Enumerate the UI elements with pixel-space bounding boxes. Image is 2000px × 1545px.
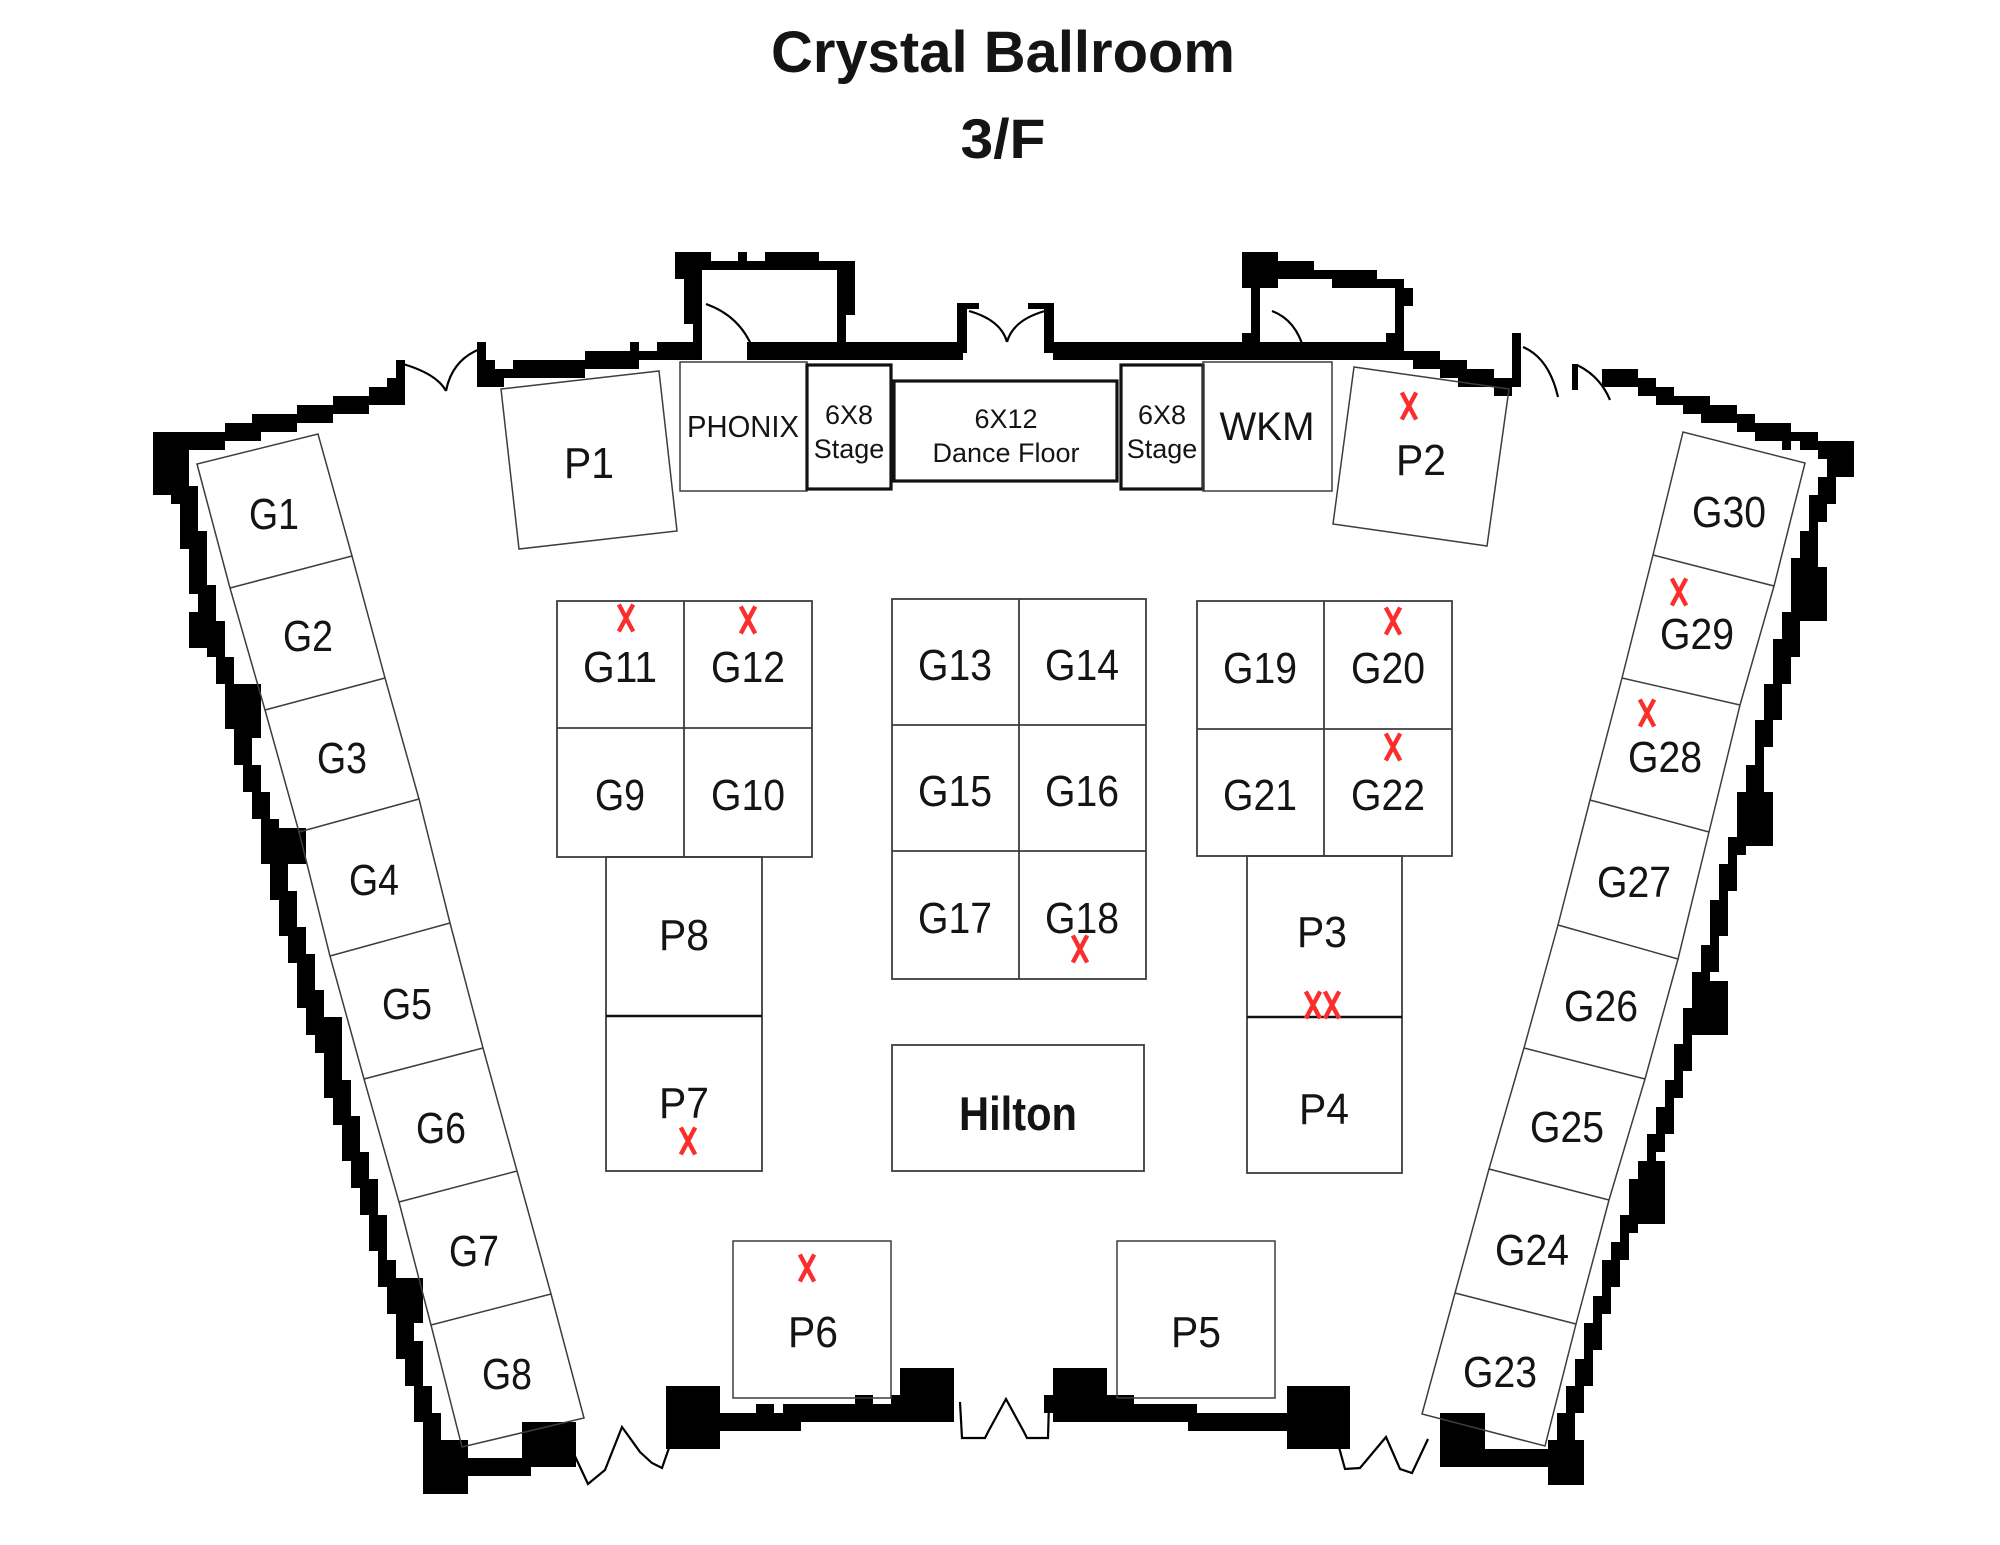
svg-text:G28: G28 [1628,733,1702,782]
svg-text:6X12: 6X12 [974,404,1037,434]
svg-text:G2: G2 [283,612,333,661]
svg-text:6X8: 6X8 [825,400,873,430]
svg-text:G5: G5 [382,980,432,1029]
svg-text:G17: G17 [918,894,992,943]
svg-text:Dance Floor: Dance Floor [932,438,1079,468]
svg-text:G24: G24 [1495,1226,1569,1275]
svg-text:G1: G1 [249,490,299,539]
svg-text:P8: P8 [659,911,709,960]
svg-text:G25: G25 [1530,1103,1604,1152]
svg-text:G15: G15 [918,767,992,816]
svg-text:G9: G9 [595,771,645,820]
svg-text:G30: G30 [1692,488,1766,537]
svg-text:P4: P4 [1299,1085,1349,1134]
svg-text:G21: G21 [1223,771,1297,820]
svg-text:G27: G27 [1597,858,1671,907]
svg-text:G6: G6 [416,1104,466,1153]
svg-text:G12: G12 [711,643,785,692]
svg-text:G26: G26 [1564,982,1638,1031]
svg-text:G16: G16 [1045,767,1119,816]
svg-text:Hilton: Hilton [959,1087,1077,1140]
svg-text:Stage: Stage [814,434,885,464]
svg-text:G3: G3 [317,734,367,783]
svg-text:G14: G14 [1045,641,1119,690]
svg-text:PHONIX: PHONIX [687,409,799,444]
svg-text:G7: G7 [449,1227,499,1276]
svg-text:P6: P6 [788,1308,838,1357]
svg-text:G22: G22 [1351,771,1425,820]
svg-text:3/F: 3/F [961,107,1046,170]
svg-text:WKM: WKM [1220,405,1315,449]
svg-text:G19: G19 [1223,644,1297,693]
svg-text:Stage: Stage [1127,434,1198,464]
svg-text:G11: G11 [583,643,657,692]
svg-text:P3: P3 [1297,908,1347,957]
svg-text:G8: G8 [482,1350,532,1399]
svg-text:G18: G18 [1045,894,1119,943]
svg-text:P7: P7 [659,1079,709,1128]
svg-text:G13: G13 [918,641,992,690]
svg-text:G29: G29 [1660,610,1734,659]
svg-text:G4: G4 [349,856,399,905]
svg-text:Crystal Ballroom: Crystal Ballroom [771,20,1235,85]
svg-text:P2: P2 [1396,436,1446,485]
svg-text:G10: G10 [711,771,785,820]
svg-text:G20: G20 [1351,644,1425,693]
svg-text:P1: P1 [564,439,614,488]
svg-text:G23: G23 [1463,1348,1537,1397]
svg-text:6X8: 6X8 [1138,400,1186,430]
svg-text:P5: P5 [1171,1308,1221,1357]
